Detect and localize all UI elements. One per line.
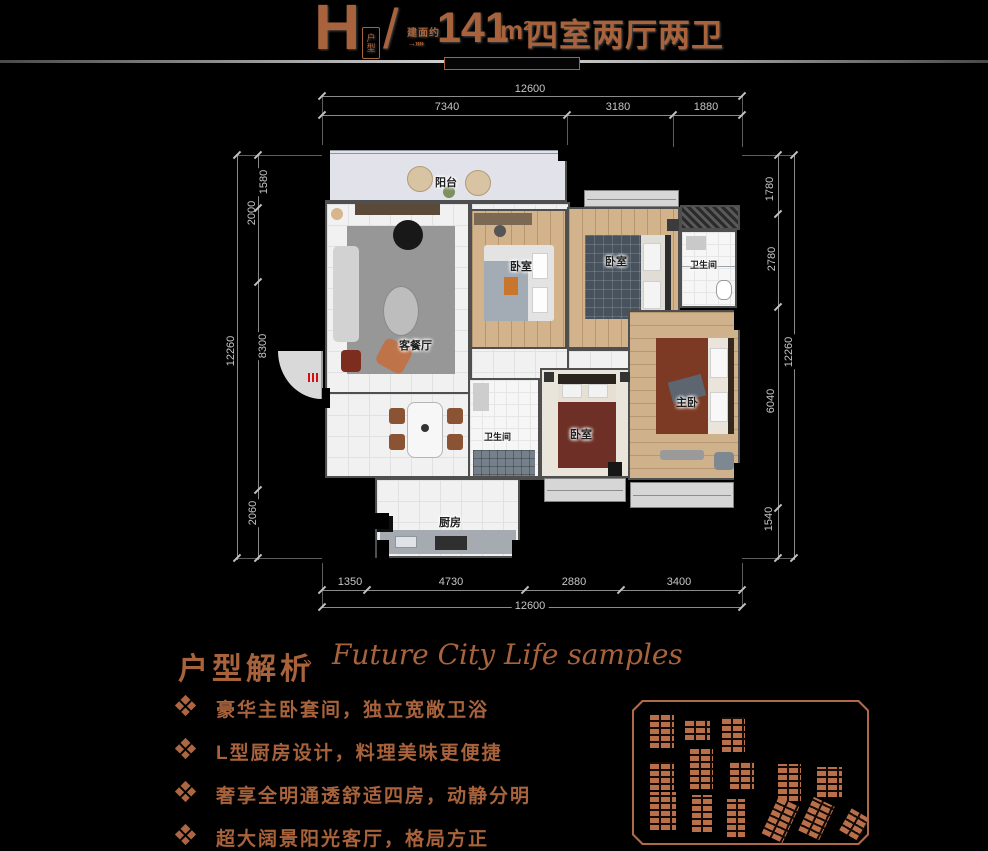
dim-line [322, 590, 742, 591]
room-label: 阳台 [435, 174, 457, 190]
window-bay [584, 190, 679, 207]
witness-line [237, 558, 322, 559]
dim-top-seg: 7340 [432, 101, 462, 113]
dim-line [322, 115, 742, 116]
entry-marker-icon [308, 373, 319, 382]
headboard [558, 374, 616, 384]
room-master: 主卧 [628, 310, 740, 480]
dining-chair [447, 434, 463, 450]
pillow [643, 243, 661, 271]
balcony-chair [465, 170, 491, 196]
building-footprint [727, 799, 745, 837]
dim-top-seg: 3180 [603, 101, 633, 113]
dim-right-seg: 1780 [764, 175, 776, 203]
room-label: 卫生间 [690, 258, 717, 271]
room-label: 主卧 [676, 394, 698, 410]
desk-chair [494, 225, 506, 237]
building-footprint [722, 717, 745, 752]
floorplan: 阳台 客餐厅 卧室 [322, 145, 742, 565]
dim-right-seg: 6040 [765, 387, 777, 415]
balcony-chair [407, 166, 433, 192]
room-bath-mid: 卫生间 [468, 378, 540, 478]
analysis-bullet-row: 超大阔景阳光客厅，格局方正 [0, 824, 620, 850]
bed [656, 338, 734, 434]
wall-column [377, 540, 389, 558]
window-bay [630, 482, 734, 508]
sofa [333, 246, 359, 342]
room-label: 厨房 [439, 514, 461, 530]
building-footprint [730, 762, 754, 789]
bullet-text: 奢享全明通透舒适四房，动静分明 [216, 781, 531, 808]
blanket [585, 235, 641, 319]
site-plan-inset [632, 700, 869, 845]
witness-line [742, 558, 794, 559]
bullet-text: 超大阔景阳光客厅，格局方正 [216, 824, 489, 851]
building-footprint [817, 767, 842, 797]
dim-right-seg: 1540 [763, 505, 775, 533]
stair-core [680, 205, 740, 230]
toilet [716, 280, 732, 300]
diamond-bullet-icon [175, 738, 196, 759]
wall-column [512, 540, 526, 558]
room-count-title: 四室两厅两卫 [526, 10, 724, 56]
window-bay [544, 478, 626, 502]
pillow [588, 384, 608, 398]
room-bath-top: 卫生间 [680, 230, 737, 308]
nightstand [620, 372, 630, 382]
pillow [710, 392, 728, 422]
building-footprint [690, 749, 713, 789]
room-bedroom-top: 卧室 [470, 209, 567, 349]
building-footprint [839, 808, 870, 840]
bullet-text: L型厨房设计，料理美味更便捷 [216, 738, 503, 765]
tv-console [355, 204, 440, 215]
diamond-bullet-icon [175, 781, 196, 802]
headboard [728, 338, 734, 434]
analysis-heading: 户型解析 [178, 644, 314, 688]
area-value: 141 [437, 4, 509, 53]
building-footprint [650, 762, 674, 790]
diamond-bullet-icon [175, 824, 196, 845]
dining-chair [447, 408, 463, 424]
building-footprint [798, 797, 834, 840]
witness-line [742, 155, 794, 156]
witness-line [322, 563, 323, 607]
dim-right-seg: 2780 [766, 245, 778, 273]
analysis-subtitle-script: Future City Life samples [332, 638, 683, 671]
pillow [532, 287, 548, 313]
headboard [665, 235, 671, 319]
dim-top-seg: 1880 [691, 101, 721, 113]
wall-column [558, 145, 580, 161]
throw-pillow [504, 277, 518, 295]
room-living: 客餐厅 [325, 202, 470, 392]
wall-column [734, 310, 742, 330]
building-footprint [778, 764, 801, 801]
dim-line [237, 155, 238, 560]
room-label: 卧室 [510, 258, 532, 274]
wall-column [322, 388, 330, 408]
cabinet [608, 462, 622, 476]
building-footprint [650, 792, 676, 830]
wall-column [734, 463, 742, 481]
wall-column [322, 145, 330, 200]
room-label: 卧室 [570, 426, 592, 442]
area-prefix: 建面约 →»» [407, 24, 440, 48]
dim-left-seg: 8300 [257, 332, 269, 360]
witness-line [742, 563, 743, 607]
dining-chair [389, 434, 405, 450]
dim-line [778, 155, 779, 560]
room-bedroom-bottom: 卧室 [540, 368, 630, 478]
witness-line [322, 96, 323, 147]
unit-letter: H [314, 0, 360, 64]
bed [585, 235, 671, 319]
room-label: 卧室 [605, 253, 627, 269]
dim-line [322, 96, 742, 97]
floorplan-poster: H 户型 / 建面约 →»» 141 m² 四室两厅两卫 12600 7340 … [0, 0, 988, 851]
pillow [643, 281, 661, 309]
room-label: 卫生间 [484, 430, 511, 443]
dim-bottom-total: 12600 [512, 600, 549, 612]
dim-right-total: 12260 [783, 335, 795, 370]
analysis-bullet-row: 豪华主卧套间，独立宽敞卫浴 [0, 695, 620, 721]
kitchen-sink [395, 536, 417, 548]
coffee-table [383, 286, 419, 336]
pillow [562, 384, 582, 398]
header-badge-frame [444, 57, 580, 70]
witness-line [673, 115, 674, 147]
room-balcony: 阳台 [325, 150, 567, 202]
building-footprint [685, 720, 710, 740]
title-slash: / [383, 0, 399, 61]
dim-tick [790, 554, 798, 562]
shower [473, 450, 535, 476]
nightstand [667, 219, 679, 231]
witness-line [237, 155, 322, 156]
dim-top-total: 12600 [512, 83, 549, 95]
dim-left-total: 12260 [225, 334, 237, 369]
nightstand [544, 372, 554, 382]
accent-chair [341, 350, 361, 372]
vanity [473, 383, 489, 411]
analysis-bullet-row: 奢享全明通透舒适四房，动静分明 [0, 781, 620, 807]
building-footprint [762, 797, 800, 843]
witness-line [567, 115, 568, 147]
wall-column [724, 145, 740, 163]
site-plan-canvas [634, 702, 867, 843]
armchair [393, 220, 423, 250]
dim-tick [738, 603, 746, 611]
wall-column [373, 513, 389, 529]
analysis-bullet-row: L型厨房设计，料理美味更便捷 [0, 738, 620, 764]
unit-type-label: 户型 [365, 33, 378, 53]
diamond-bullet-icon [175, 695, 196, 716]
sink [686, 236, 706, 250]
dim-bottom-seg: 1350 [335, 576, 365, 588]
room-label: 客餐厅 [399, 337, 432, 353]
dim-left-seg: 2060 [247, 499, 259, 527]
witness-line [742, 96, 743, 147]
bullet-text: 豪华主卧套间，独立宽敞卫浴 [216, 695, 489, 722]
pillow [532, 253, 548, 279]
dining-chair [389, 408, 405, 424]
desk [474, 213, 532, 225]
dim-left-seg: 2000 [246, 199, 258, 227]
side-table [331, 208, 343, 220]
dim-left-seg: 1580 [258, 168, 270, 196]
dim-bottom-seg: 2880 [559, 576, 589, 588]
table-centerpiece [421, 424, 429, 432]
bed [484, 245, 554, 321]
arrow-icon: →»» [407, 38, 440, 48]
building-footprint [692, 795, 712, 832]
stove [435, 536, 467, 550]
dim-bottom-seg: 3400 [664, 576, 694, 588]
bench [660, 450, 704, 460]
pillow [710, 348, 728, 378]
unit-type-badge: 户型 [362, 27, 380, 59]
chair [714, 452, 734, 470]
dim-bottom-seg: 4730 [436, 576, 466, 588]
room-kitchen: 厨房 [375, 478, 520, 558]
building-footprint [650, 715, 674, 748]
chevron-right-icon: » [303, 654, 312, 672]
